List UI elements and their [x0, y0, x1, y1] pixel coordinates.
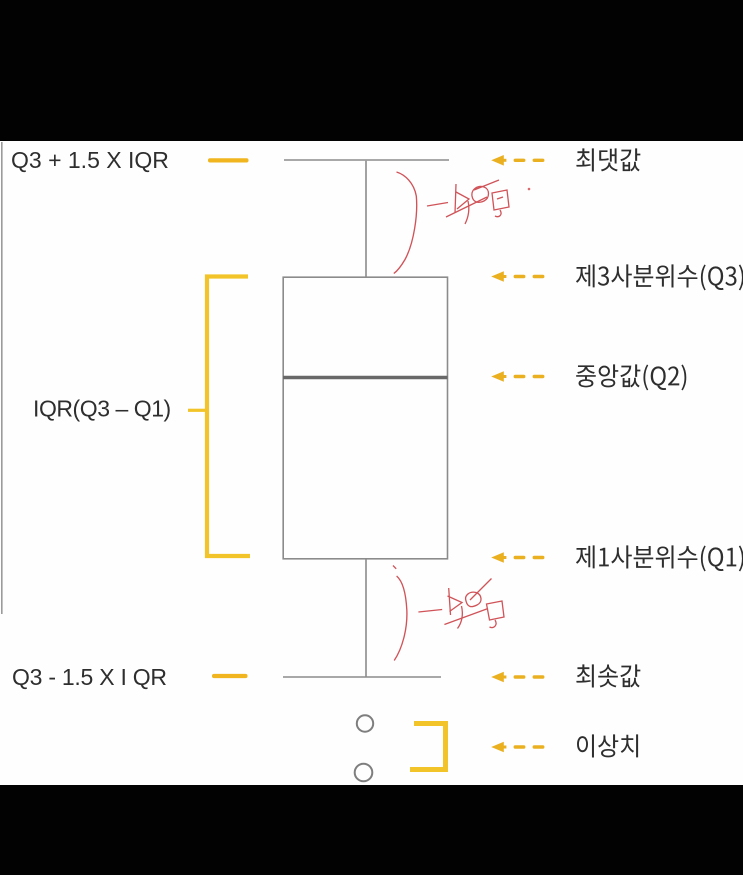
svg-text:Q3 + 1.5 X IQR: Q3 + 1.5 X IQR: [11, 147, 169, 173]
svg-text:IQR(Q3 – Q1): IQR(Q3 – Q1): [33, 396, 171, 422]
svg-text:Q3 - 1.5 X I QR: Q3 - 1.5 X I QR: [12, 664, 167, 690]
